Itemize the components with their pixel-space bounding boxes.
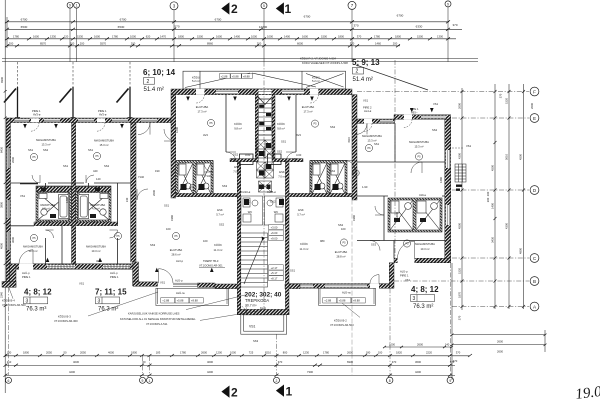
svg-text:+8.88: +8.88 — [243, 74, 250, 78]
svg-text:3600: 3600 — [415, 360, 421, 364]
svg-text:SS3: SS3 — [222, 184, 228, 188]
svg-text:VT.JOONIS AR-500: VT.JOONIS AR-500 — [2, 303, 26, 307]
svg-text:MAGAMISTUBA: MAGAMISTUBA — [362, 134, 382, 138]
svg-text:140: 140 — [231, 157, 236, 161]
svg-text:3430: 3430 — [491, 237, 495, 243]
svg-text:KATUSELUOD ALL 01 SEINALE KINN: KATUSELUOD ALL 01 SEINALE KINNITATUD MET… — [120, 317, 196, 321]
svg-text:1400: 1400 — [234, 34, 240, 38]
svg-text:28.6 m²: 28.6 m² — [171, 252, 180, 256]
svg-text:6700: 6700 — [304, 15, 311, 19]
svg-text:SS2: SS2 — [432, 128, 438, 132]
svg-text:4200: 4200 — [207, 370, 213, 374]
svg-text:1: 1 — [286, 384, 293, 398]
svg-text:6: 6 — [8, 379, 10, 383]
svg-text:MAGAMISTUBA: MAGAMISTUBA — [86, 245, 106, 249]
svg-text:TREPP 7B-3: TREPP 7B-3 — [203, 259, 219, 263]
svg-text:+9.00: +9.00 — [271, 236, 278, 240]
svg-text:VS1: VS1 — [20, 194, 26, 198]
svg-text:11.3 m²: 11.3 m² — [300, 247, 309, 251]
svg-text:980: 980 — [320, 239, 325, 243]
svg-text:SS1: SS1 — [88, 148, 94, 152]
svg-text:2000: 2000 — [530, 103, 534, 109]
svg-text:4030: 4030 — [96, 259, 102, 263]
svg-text:200: 200 — [70, 41, 75, 45]
svg-text:4300: 4300 — [505, 223, 509, 229]
svg-text:5.7 m²: 5.7 m² — [297, 212, 305, 216]
svg-text:1820: 1820 — [396, 351, 402, 355]
svg-text:10.3 m²: 10.3 m² — [420, 247, 429, 251]
svg-text:6530: 6530 — [118, 25, 125, 29]
svg-text:ESK: ESK — [279, 170, 285, 174]
svg-text:AV4: AV4 — [203, 133, 208, 137]
svg-text:7140: 7140 — [205, 174, 211, 178]
svg-text:2000: 2000 — [11, 157, 15, 163]
svg-text:370: 370 — [452, 23, 457, 27]
svg-text:ELUTUBA: ELUTUBA — [302, 105, 315, 109]
svg-text:10.3 m²: 10.3 m² — [28, 249, 37, 253]
svg-text:VT.JOONIS A-511: VT.JOONIS A-511 — [146, 322, 168, 326]
svg-text:120: 120 — [64, 34, 69, 38]
svg-text:1780: 1780 — [374, 34, 380, 38]
svg-text:1230: 1230 — [303, 351, 309, 355]
svg-text:PIRE 1: PIRE 1 — [32, 109, 41, 113]
svg-text:SS1: SS1 — [28, 148, 34, 152]
svg-text:9: 9 — [69, 4, 71, 8]
svg-text:3: 3 — [26, 299, 29, 305]
svg-text:5; 9; 13: 5; 9; 13 — [352, 58, 380, 67]
svg-text:ALÜ-p: ALÜ-p — [22, 271, 30, 275]
svg-text:SS2: SS2 — [219, 223, 225, 227]
svg-text:+2.17: +2.17 — [271, 266, 278, 270]
svg-text:20.7 m²: 20.7 m² — [245, 303, 257, 307]
svg-text:370: 370 — [392, 360, 397, 364]
svg-text:SS3: SS3 — [92, 220, 98, 224]
svg-text:MAGAMISTUBA: MAGAMISTUBA — [415, 242, 435, 246]
svg-text:SS2: SS2 — [104, 164, 110, 168]
svg-text:5: 5 — [263, 4, 265, 8]
svg-text:4; 8; 12: 4; 8; 12 — [24, 288, 52, 297]
svg-text:1480: 1480 — [439, 177, 443, 183]
svg-text:370: 370 — [350, 41, 355, 45]
svg-text:6000: 6000 — [297, 41, 303, 45]
svg-text:1500: 1500 — [321, 34, 327, 38]
svg-text:9: 9 — [449, 379, 451, 383]
svg-text:+2.88: +2.88 — [162, 299, 169, 303]
svg-text:200: 200 — [9, 41, 14, 45]
svg-text:50: 50 — [143, 360, 146, 364]
svg-text:8570: 8570 — [40, 41, 46, 45]
svg-text:ALÜ-p: ALÜ-p — [110, 271, 118, 275]
svg-text:100: 100 — [166, 227, 171, 231]
svg-text:+5.17: +5.17 — [271, 271, 278, 275]
svg-text:SS3: SS3 — [371, 243, 377, 247]
svg-text:1200: 1200 — [216, 351, 222, 355]
svg-text:VS1: VS1 — [405, 278, 411, 282]
svg-text:AV4: AV4 — [296, 133, 301, 137]
svg-text:6930: 6930 — [347, 360, 353, 364]
svg-text:4900: 4900 — [0, 77, 4, 83]
svg-text:76.3 m²: 76.3 m² — [413, 304, 433, 310]
svg-text:3: 3 — [413, 296, 416, 302]
svg-text:5010: 5010 — [505, 154, 509, 160]
svg-text:1-90: 1-90 — [362, 185, 368, 189]
svg-text:4.9 m²: 4.9 m² — [92, 207, 100, 211]
svg-text:51.4 m²: 51.4 m² — [353, 77, 373, 83]
svg-text:4%0: 4%0 — [347, 137, 351, 143]
svg-text:370: 370 — [453, 359, 458, 363]
svg-text:1800: 1800 — [23, 351, 29, 355]
svg-text:6430: 6430 — [0, 147, 4, 153]
svg-text:2050: 2050 — [80, 351, 86, 355]
svg-text:6330: 6330 — [416, 24, 423, 28]
svg-text:MAGAMISTUBA: MAGAMISTUBA — [94, 139, 114, 143]
svg-text:2340: 2340 — [0, 292, 4, 298]
svg-text:WC: WC — [248, 210, 253, 214]
svg-text:1600: 1600 — [94, 34, 100, 38]
svg-text:370: 370 — [499, 93, 503, 98]
svg-text:370: 370 — [458, 315, 462, 320]
svg-text:5.7 m²: 5.7 m² — [216, 212, 224, 216]
svg-text:+5.88: +5.88 — [177, 299, 184, 303]
svg-text:11.3 m²: 11.3 m² — [214, 248, 223, 252]
svg-text:4500: 4500 — [458, 223, 462, 229]
svg-text:3900: 3900 — [0, 202, 4, 208]
svg-text:8: 8 — [389, 379, 391, 383]
svg-text:7; 11; 15: 7; 11; 15 — [95, 288, 127, 297]
svg-text:17.3 m²: 17.3 m² — [197, 110, 206, 114]
svg-text:1600: 1600 — [33, 34, 39, 38]
svg-text:TREPIKODA: TREPIKODA — [245, 298, 269, 303]
svg-text:AL4-ø: AL4-ø — [364, 109, 372, 113]
svg-text:17.3 m²: 17.3 m² — [303, 110, 312, 114]
svg-text:9: 9 — [447, 2, 449, 6]
svg-text:SS2: SS2 — [330, 125, 336, 129]
svg-text:1: 1 — [285, 2, 292, 16]
svg-text:+2.88: +2.88 — [221, 74, 228, 78]
svg-text:+8.88: +8.88 — [353, 299, 360, 303]
svg-text:28.8 m²: 28.8 m² — [336, 254, 345, 258]
svg-text:2: 2 — [147, 79, 150, 85]
svg-text:1200: 1200 — [175, 127, 179, 133]
svg-text:SS1: SS1 — [290, 269, 296, 273]
svg-text:3000: 3000 — [395, 212, 399, 218]
svg-text:VANNITUBA: VANNITUBA — [40, 203, 55, 207]
svg-text:800: 800 — [283, 351, 288, 355]
svg-text:1600: 1600 — [216, 34, 222, 38]
svg-text:140: 140 — [96, 177, 101, 181]
svg-text:1980: 1980 — [352, 215, 356, 221]
svg-text:VS1: VS1 — [160, 281, 166, 285]
svg-text:4800: 4800 — [519, 248, 523, 254]
svg-text:ELUTUBA: ELUTUBA — [170, 248, 183, 252]
svg-text:200: 200 — [80, 41, 85, 45]
svg-text:190: 190 — [155, 169, 160, 173]
svg-text:4000: 4000 — [0, 243, 4, 249]
svg-text:2000: 2000 — [458, 103, 462, 109]
svg-text:SS1: SS1 — [281, 140, 287, 144]
svg-text:1800: 1800 — [395, 34, 401, 38]
svg-text:4500: 4500 — [491, 165, 495, 171]
svg-text:8960: 8960 — [207, 41, 213, 45]
svg-text:+5.88: +5.88 — [339, 299, 346, 303]
svg-text:4200: 4200 — [69, 370, 75, 374]
svg-text:VS1: VS1 — [79, 281, 85, 285]
svg-text:ALÜ-ra: ALÜ-ra — [342, 291, 351, 295]
svg-text:AV3-ø: AV3-ø — [99, 113, 107, 117]
svg-text:370: 370 — [456, 351, 461, 355]
svg-text:2600: 2600 — [284, 215, 288, 221]
svg-text:4000: 4000 — [207, 360, 213, 364]
svg-text:1500: 1500 — [417, 34, 423, 38]
svg-text:5570: 5570 — [100, 41, 106, 45]
svg-text:KÖÖK: KÖÖK — [300, 242, 308, 246]
svg-text:4030: 4030 — [73, 360, 79, 364]
svg-text:140: 140 — [125, 197, 129, 202]
svg-text:100: 100 — [378, 351, 383, 355]
svg-text:KU/B-ø: KU/B-ø — [267, 190, 276, 194]
svg-text:2600: 2600 — [497, 340, 503, 344]
svg-text:1: 1 — [76, 4, 78, 8]
svg-text:1600: 1600 — [302, 34, 308, 38]
svg-text:200: 200 — [393, 41, 398, 45]
svg-text:KL-4: KL-4 — [260, 306, 266, 310]
svg-text:8210: 8210 — [265, 351, 271, 355]
svg-text:2600: 2600 — [497, 350, 503, 354]
svg-text:370: 370 — [353, 23, 358, 27]
svg-text:200: 200 — [257, 41, 262, 45]
svg-text:200: 200 — [131, 41, 136, 45]
svg-text:VANNITUBA: VANNITUBA — [90, 203, 105, 207]
svg-text:SS2: SS2 — [338, 223, 344, 227]
svg-text:13.3 m²: 13.3 m² — [41, 143, 50, 147]
svg-text:1300: 1300 — [437, 34, 443, 38]
svg-text:15.3 m²: 15.3 m² — [414, 145, 423, 149]
svg-text:6700: 6700 — [397, 13, 404, 17]
svg-text:2600: 2600 — [347, 351, 353, 355]
svg-text:2600: 2600 — [417, 342, 423, 346]
svg-text:4.9 m²: 4.9 m² — [42, 207, 50, 211]
svg-text:SS1: SS1 — [374, 142, 380, 146]
svg-text:ALÜ-p: ALÜ-p — [175, 278, 183, 282]
svg-text:76.3 m³: 76.3 m³ — [26, 307, 46, 313]
svg-text:ALÜ-ra: ALÜ-ra — [176, 291, 185, 295]
svg-text:E: E — [533, 116, 536, 121]
svg-text:MAGAMISTUBA: MAGAMISTUBA — [36, 138, 56, 142]
svg-text:1000: 1000 — [130, 34, 136, 38]
svg-text:MAGAMISTUBA: MAGAMISTUBA — [23, 245, 43, 249]
svg-text:620: 620 — [146, 34, 151, 38]
svg-text:183: 183 — [156, 351, 161, 355]
svg-text:1780: 1780 — [13, 34, 19, 38]
svg-text:6700: 6700 — [120, 18, 127, 22]
svg-text:1330: 1330 — [50, 34, 56, 38]
svg-text:A93--: A93-- — [411, 111, 418, 115]
svg-text:EU2: EU2 — [270, 199, 276, 203]
svg-text:4:00: 4:00 — [245, 153, 251, 157]
svg-text:7.0 m²: 7.0 m² — [278, 174, 286, 178]
svg-text:4000: 4000 — [108, 351, 114, 355]
svg-text:VT.JOONIS AR-503: VT.JOONIS AR-503 — [330, 323, 354, 327]
svg-text:KÖÖK: KÖÖK — [277, 122, 285, 126]
svg-text:4; 8; 12: 4; 8; 12 — [411, 285, 439, 294]
svg-text:6530: 6530 — [21, 25, 28, 29]
svg-text:AL/I-p: AL/I-p — [176, 259, 184, 263]
svg-text:KÖÖK: KÖÖK — [214, 243, 222, 247]
svg-text:140: 140 — [445, 342, 450, 346]
svg-text:SS3: SS3 — [253, 339, 259, 343]
svg-text:15.3 m²: 15.3 m² — [99, 143, 108, 147]
svg-text:180: 180 — [7, 351, 12, 355]
svg-text:SS3: SS3 — [150, 243, 156, 247]
svg-text:410-a: 410-a — [419, 193, 426, 197]
svg-text:6700: 6700 — [21, 18, 28, 22]
svg-text:ELUTUBA: ELUTUBA — [335, 250, 348, 254]
svg-text:300: 300 — [486, 197, 490, 202]
svg-text:370: 370 — [278, 360, 283, 364]
svg-text:MAGAMISTUBA: MAGAMISTUBA — [409, 140, 429, 144]
svg-text:1980: 1980 — [170, 215, 174, 221]
svg-text:1000: 1000 — [267, 34, 273, 38]
svg-text:VS1: VS1 — [249, 325, 256, 329]
svg-text:50: 50 — [64, 351, 67, 355]
svg-text:2220: 2220 — [426, 351, 432, 355]
svg-text:2: 2 — [276, 379, 278, 383]
svg-text:1780: 1780 — [112, 34, 118, 38]
svg-text:1000: 1000 — [230, 351, 236, 355]
svg-text:1800: 1800 — [131, 351, 137, 355]
svg-text:PIRE 1: PIRE 1 — [98, 109, 107, 113]
svg-text:7.0 m²: 7.0 m² — [233, 169, 241, 173]
svg-text:570: 570 — [174, 24, 179, 28]
svg-text:4200: 4200 — [415, 370, 421, 374]
svg-text:SS1: SS1 — [164, 204, 170, 208]
svg-text:4500: 4500 — [519, 154, 523, 160]
svg-text:VT.JOONIS AR-301: VT.JOONIS AR-301 — [199, 264, 223, 268]
svg-text:1470: 1470 — [160, 34, 166, 38]
svg-text:725: 725 — [249, 351, 254, 355]
svg-text:SS2: SS2 — [43, 148, 49, 152]
svg-text:KARJUSELUUK VAIKSE KORRUSE LAE: KARJUSELUUK VAIKSE KORRUSE LAES — [128, 311, 180, 315]
svg-text:180: 180 — [366, 351, 371, 355]
svg-text:1: 1 — [149, 379, 151, 383]
svg-text:2000: 2000 — [152, 190, 156, 196]
svg-text:+2.88: +2.88 — [324, 299, 331, 303]
svg-text:+8.88: +8.88 — [191, 299, 198, 303]
svg-text:AV3-ø: AV3-ø — [33, 113, 41, 117]
svg-text:ESK: ESK — [217, 208, 223, 212]
svg-text:210: 210 — [7, 360, 12, 364]
svg-text:100: 100 — [203, 239, 208, 243]
svg-text:1500: 1500 — [197, 34, 203, 38]
svg-text:2600: 2600 — [201, 351, 207, 355]
svg-text:200: 200 — [486, 191, 490, 196]
svg-text:2600: 2600 — [237, 215, 241, 221]
svg-text:F: F — [533, 89, 536, 94]
svg-text:2: 2 — [356, 69, 359, 75]
svg-text:140: 140 — [292, 157, 297, 161]
svg-text:1460: 1460 — [375, 41, 381, 45]
svg-text:PIRE 1: PIRE 1 — [410, 107, 419, 111]
svg-text:4300: 4300 — [458, 153, 462, 159]
svg-text:1530: 1530 — [77, 34, 83, 38]
svg-text:3000: 3000 — [11, 237, 15, 243]
svg-text:2: 2 — [231, 385, 238, 399]
svg-text:1400: 1400 — [284, 34, 290, 38]
svg-text:ELUTUBA: ELUTUBA — [196, 105, 209, 109]
svg-text:3: 3 — [98, 299, 101, 305]
svg-text:1520: 1520 — [458, 268, 462, 274]
svg-text:KU10-ø: KU10-ø — [241, 190, 251, 194]
svg-text:100: 100 — [341, 227, 346, 231]
svg-text:VS1: VS1 — [466, 144, 472, 148]
svg-text:ALÜ-p: ALÜ-p — [400, 270, 408, 274]
svg-text:PIRE 1: PIRE 1 — [22, 275, 31, 279]
svg-text:2050: 2050 — [46, 351, 52, 355]
svg-text:B: B — [533, 279, 536, 284]
svg-text:440: 440 — [93, 169, 98, 173]
svg-text:+8.17: +8.17 — [271, 277, 278, 281]
svg-text:PIRE 1: PIRE 1 — [110, 275, 119, 279]
svg-text:6700: 6700 — [215, 18, 222, 22]
svg-text:4:00: 4:00 — [296, 153, 302, 157]
svg-text:5.2 m²: 5.2 m² — [312, 79, 320, 83]
svg-text:9: 9 — [142, 379, 144, 383]
svg-text:ESK: ESK — [234, 165, 240, 169]
svg-text:7300: 7300 — [307, 370, 313, 374]
svg-text:7140: 7140 — [138, 175, 144, 179]
svg-text:VS1: VS1 — [433, 102, 439, 106]
svg-text:1870: 1870 — [458, 292, 462, 298]
svg-text:13.3 m²: 13.3 m² — [367, 139, 376, 143]
svg-text:1800: 1800 — [178, 34, 184, 38]
svg-text:SS2: SS2 — [330, 169, 336, 173]
svg-text:ESK: ESK — [298, 208, 304, 212]
svg-text:51.4 m²: 51.4 m² — [144, 87, 164, 93]
svg-text:1800: 1800 — [338, 34, 344, 38]
svg-text:370: 370 — [357, 34, 362, 38]
svg-text:+3.00: +3.00 — [271, 226, 278, 230]
svg-text:19.0: 19.0 — [575, 384, 600, 400]
svg-text:10.3 m²: 10.3 m² — [91, 249, 100, 253]
svg-text:SS2: SS2 — [277, 150, 283, 154]
svg-text:9.8 m²: 9.8 m² — [277, 127, 285, 131]
svg-text:+5.88: +5.88 — [232, 74, 239, 78]
svg-text:EU2: EU2 — [245, 199, 251, 203]
svg-text:1400: 1400 — [65, 197, 69, 203]
svg-text:5.2 m²: 5.2 m² — [192, 79, 200, 83]
svg-text:PIRE 1: PIRE 1 — [400, 273, 409, 277]
svg-text:9.8 m²: 9.8 m² — [234, 127, 242, 131]
svg-text:KÖÖK: KÖÖK — [234, 122, 242, 126]
svg-text:1780: 1780 — [323, 351, 329, 355]
svg-text:1000: 1000 — [389, 342, 395, 346]
svg-text:1520: 1520 — [505, 98, 509, 104]
svg-text:1400: 1400 — [491, 203, 495, 209]
svg-text:12200: 12200 — [259, 25, 268, 29]
svg-text:WC: WC — [274, 210, 279, 214]
svg-text:+6.00: +6.00 — [271, 231, 278, 235]
svg-text:1780: 1780 — [180, 351, 186, 355]
svg-text:SS1: SS1 — [63, 164, 69, 168]
svg-text:6; 10; 14: 6; 10; 14 — [143, 68, 176, 77]
svg-text:VS1: VS1 — [363, 99, 369, 103]
svg-text:2: 2 — [231, 2, 238, 16]
svg-text:VT.JOONIS AR-300: VT.JOONIS AR-300 — [54, 319, 78, 323]
svg-text:1000: 1000 — [251, 34, 257, 38]
svg-text:PIRE 2: PIRE 2 — [363, 106, 372, 110]
svg-text:SS3: SS3 — [47, 220, 53, 224]
